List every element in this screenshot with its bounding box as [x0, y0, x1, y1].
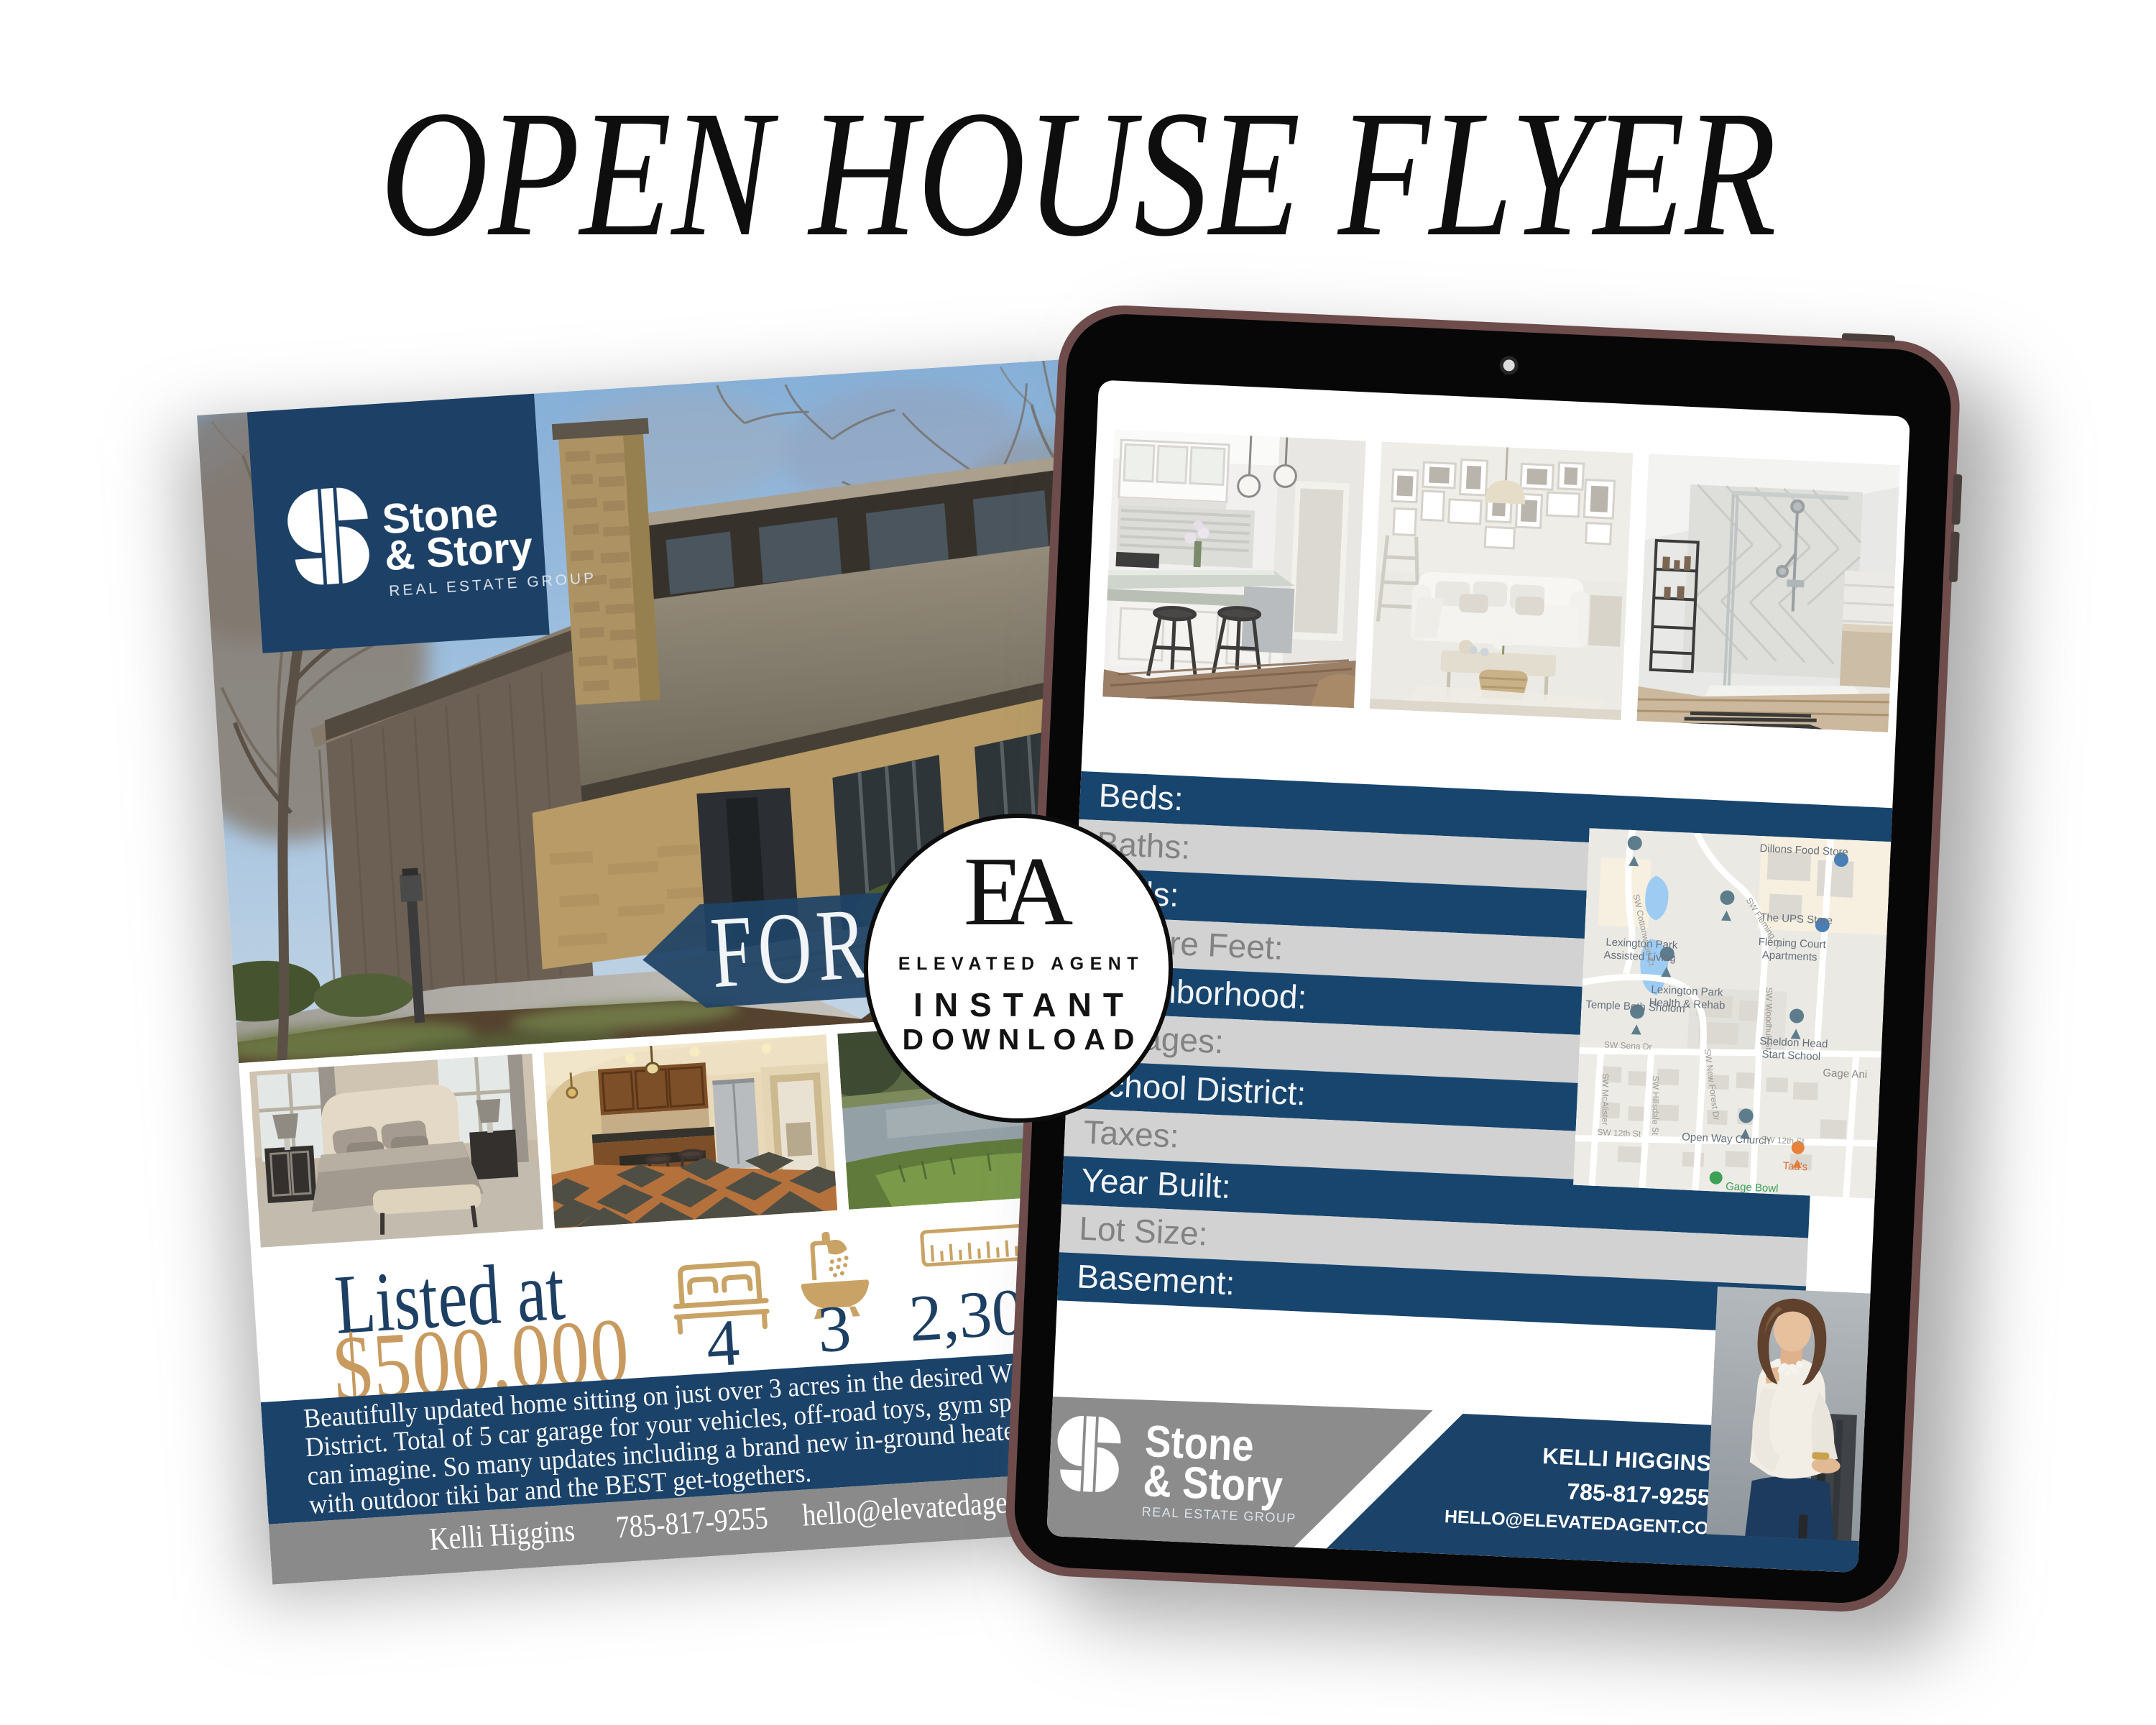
svg-text:SW 12th St: SW 12th St: [1597, 1127, 1641, 1139]
svg-text:Gage Ani: Gage Ani: [1823, 1067, 1867, 1081]
svg-text:Tad's: Tad's: [1782, 1160, 1807, 1174]
svg-text:SW 12th St: SW 12th St: [1761, 1134, 1805, 1146]
svg-text:Start School: Start School: [1761, 1048, 1820, 1063]
svg-text:SW Woodhull St: SW Woodhull St: [1764, 987, 1774, 1050]
svg-text:Apartments: Apartments: [1761, 949, 1817, 963]
svg-text:SW McAlister: SW McAlister: [1600, 1073, 1611, 1125]
svg-text:SW Sena Dr: SW Sena Dr: [1604, 1039, 1652, 1052]
svg-text:SW Hillsdale St: SW Hillsdale St: [1650, 1075, 1661, 1135]
